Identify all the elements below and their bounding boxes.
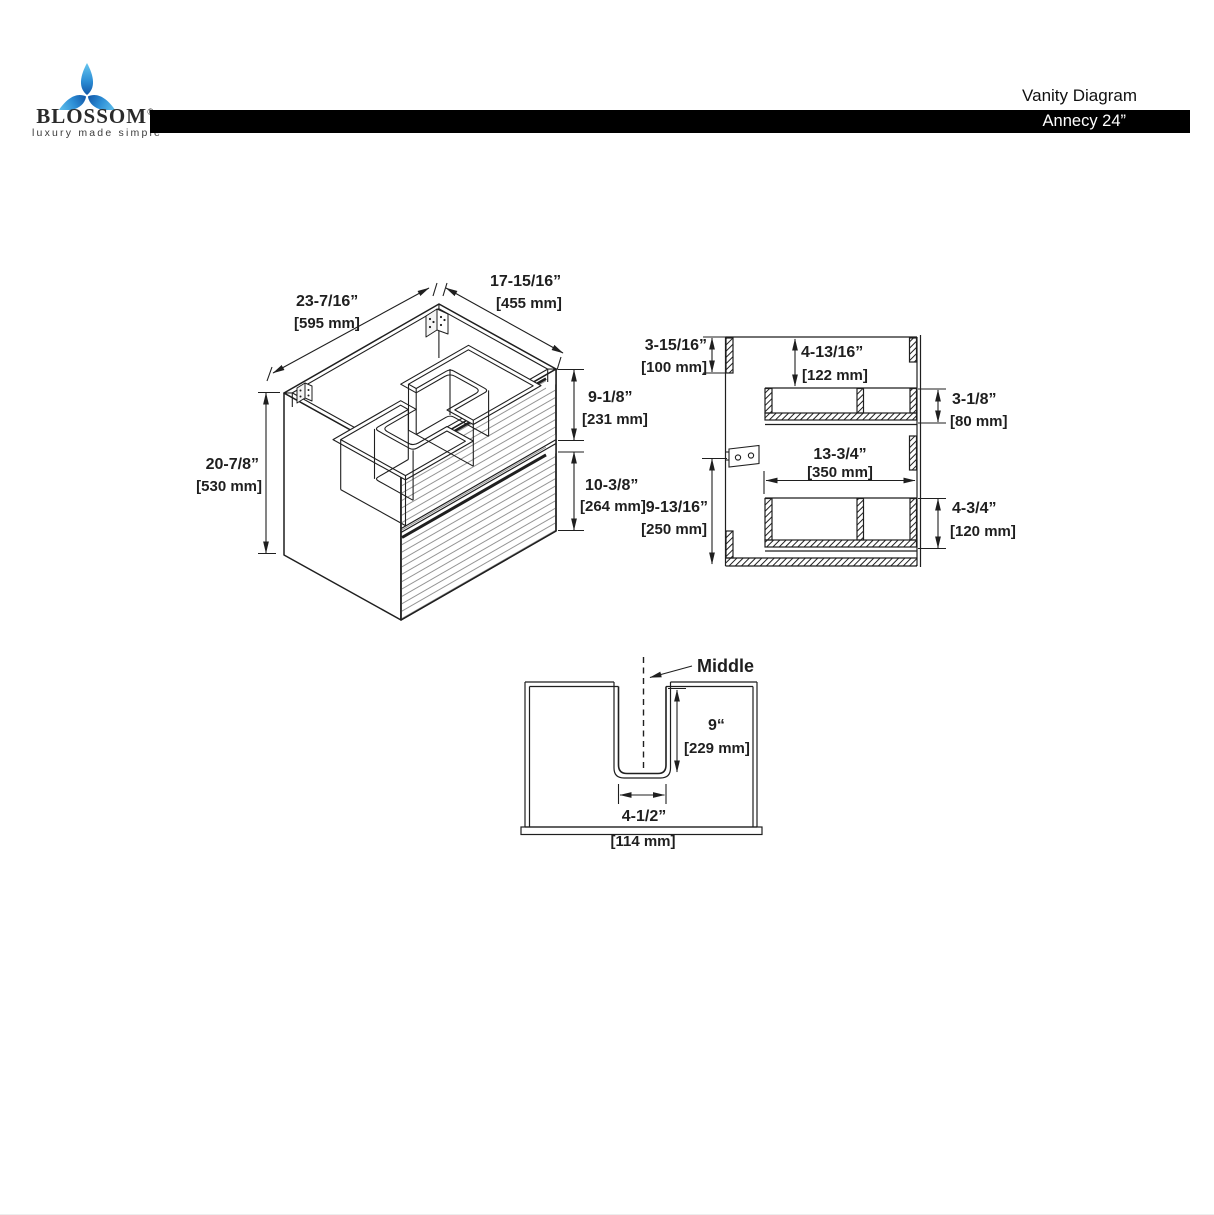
iso-height-mm: [530 mm] [196, 478, 262, 495]
cutout-depth-mm: [229 mm] [684, 740, 750, 757]
section-box-width-mm: [350 mm] [807, 464, 873, 481]
section-lower-box-inches: 4-3/4” [952, 500, 996, 517]
plumbing-cutout [614, 682, 671, 778]
section-upper-box-inches: 3-1/8” [952, 391, 996, 408]
section-lower-span-inches: 9-13/16” [646, 499, 708, 516]
section-rail-mm: [100 mm] [641, 359, 707, 376]
cutout-width-mm: [114 mm] [610, 833, 675, 850]
section-lower-box-mm: [120 mm] [950, 523, 1016, 540]
cutout-middle-label: Middle [697, 656, 754, 676]
technical-drawing: 23-7/16” [595 mm] 17-15/16” [455 mm] 20-… [0, 0, 1214, 1214]
section-box-width-inches: 13-3/4” [813, 446, 866, 463]
section-view: 3-15/16” [100 mm] 4-13/16” [122 mm] 3-1/… [641, 335, 1016, 567]
section-lower-span-mm: [250 mm] [641, 521, 707, 538]
iso-depth-inches: 17-15/16” [490, 273, 561, 290]
section-wall-bracket [726, 446, 760, 468]
isometric-view: 23-7/16” [595 mm] 17-15/16” [455 mm] 20-… [196, 273, 648, 620]
iso-top-drawer-mm: [231 mm] [582, 411, 648, 428]
section-clearance-mm: [122 mm] [802, 367, 868, 384]
section-rail-inches: 3-15/16” [645, 337, 707, 354]
cutout-depth-inches: 9“ [708, 717, 725, 734]
iso-top-drawer-inches: 9-1/8” [588, 389, 632, 406]
section-clearance-inches: 4-13/16” [801, 344, 863, 361]
section-upper-box [765, 388, 917, 425]
section-lower-box [765, 498, 917, 551]
iso-width-inches: 23-7/16” [296, 293, 358, 310]
vanity-diagram-page: BLOSSOM® luxury made simple Vanity Diagr… [0, 0, 1214, 1215]
iso-height-inches: 20-7/8” [206, 456, 259, 473]
iso-depth-mm: [455 mm] [496, 295, 562, 312]
iso-bottom-drawer-mm: [264 mm] [580, 498, 646, 515]
iso-width-mm: [595 mm] [294, 315, 360, 332]
section-upper-box-mm: [80 mm] [950, 413, 1008, 430]
iso-bottom-drawer-inches: 10-3/8” [585, 477, 638, 494]
cutout-width-inches: 4-1/2” [622, 808, 666, 825]
back-cutout-view: Middle 9“ [229 mm] 4-1/2” [114 mm] [521, 656, 762, 850]
